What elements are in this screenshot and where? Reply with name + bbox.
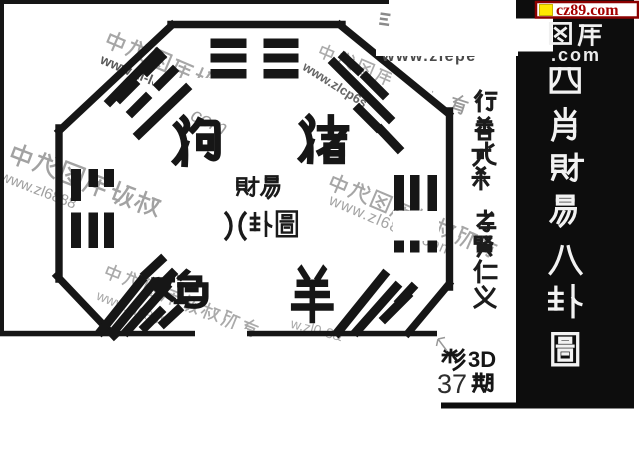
svg-text:.com: .com: [551, 45, 601, 65]
svg-text:37: 37: [437, 369, 467, 399]
svg-text:3D: 3D: [468, 347, 496, 372]
svg-text:cz89.com: cz89.com: [556, 2, 619, 19]
